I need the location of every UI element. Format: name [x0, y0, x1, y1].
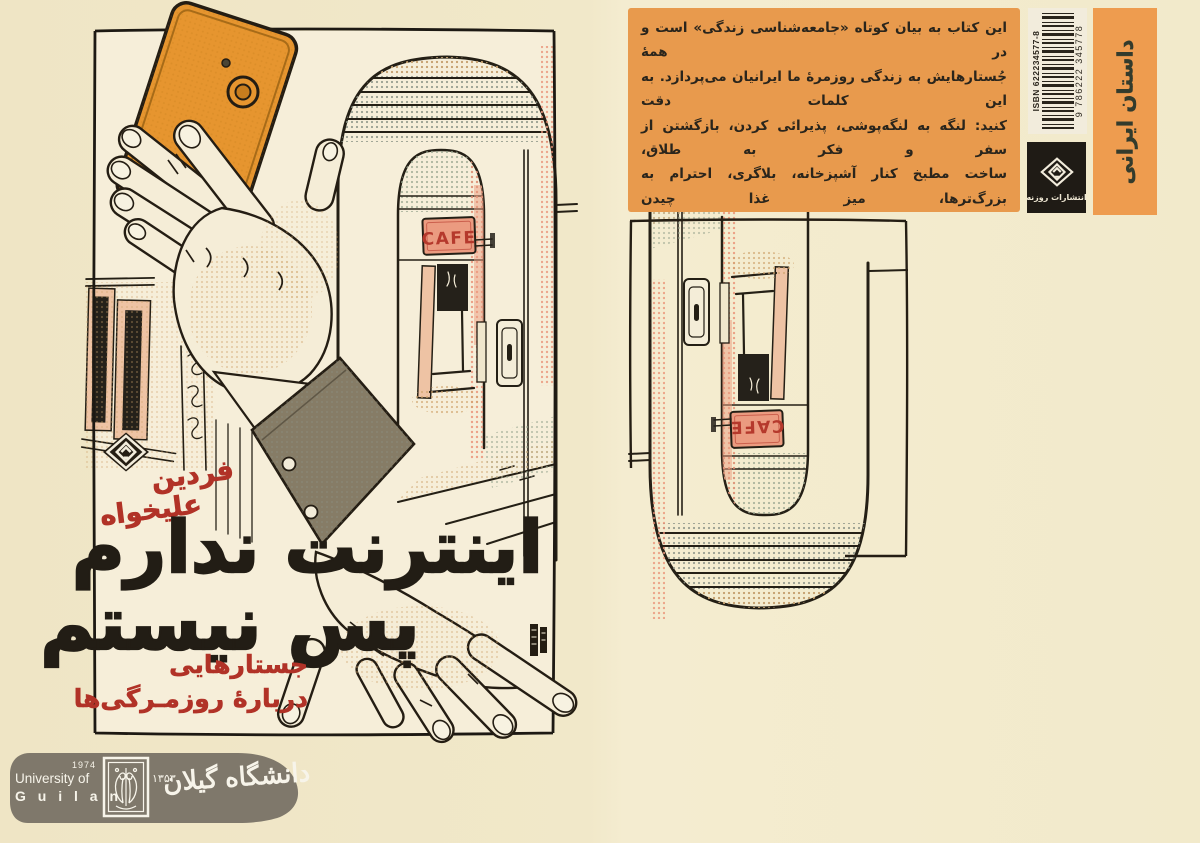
founding-year-en: 1974	[72, 760, 96, 770]
back-cover-blurb: این کتاب به بیان کوتاه «جامعه‌شناسی زندگ…	[628, 8, 1020, 212]
book-cover-artwork: CAFE	[0, 0, 1200, 843]
book-subtitle: جستارهایی دربارهٔ روزمـرگی‌ها	[40, 648, 308, 716]
isbn-barcode: ISBN 622234577-8 9 786222 345778	[1028, 8, 1087, 134]
book-cover-scan: CAFE	[0, 0, 1200, 843]
university-watermark-banner: 1974 University of G u i l a n ۱۳۵۳ دانش…	[6, 748, 308, 830]
barcode-number: 9 786222 345778	[1074, 13, 1084, 129]
isbn-label: ISBN 622234577-8	[1031, 13, 1041, 129]
blurb-line: در جنگل، بی‌حوصلگی، معمولی شدن برای هم، …	[641, 211, 1007, 212]
university-name-en-line1: University of	[15, 771, 89, 786]
publisher-knot-logo-icon	[1038, 153, 1076, 191]
category-strip-label: داستان ایرانی	[1113, 39, 1137, 184]
university-emblem-icon	[102, 756, 150, 818]
barcode-bars	[1042, 13, 1074, 129]
blurb-line: کنید: لنگه به لنگه‌پوشی، پذیرائی کردن، ب…	[641, 114, 1007, 163]
publisher-logo: انتشارات روزنه	[1027, 142, 1086, 213]
subtitle-line1: جستارهایی	[40, 648, 308, 682]
book-title-line1: اینترنت ندارم	[50, 512, 565, 583]
blurb-line: جُستارهایش به زندگی روزمرهٔ ما ایرانیان …	[641, 65, 1007, 114]
cuff-button	[283, 458, 296, 471]
publisher-name: انتشارات روزنه	[1026, 193, 1086, 202]
blurb-line: ساخت مطبخ کنار آشپزخانه، بلاگری، احترام …	[641, 162, 1007, 211]
subtitle-line2: دربارهٔ روزمـرگی‌ها	[40, 682, 308, 716]
blurb-line: این کتاب به بیان کوتاه «جامعه‌شناسی زندگ…	[641, 16, 1007, 65]
phone-flash-icon	[222, 59, 230, 67]
category-strip: داستان ایرانی	[1093, 8, 1157, 215]
